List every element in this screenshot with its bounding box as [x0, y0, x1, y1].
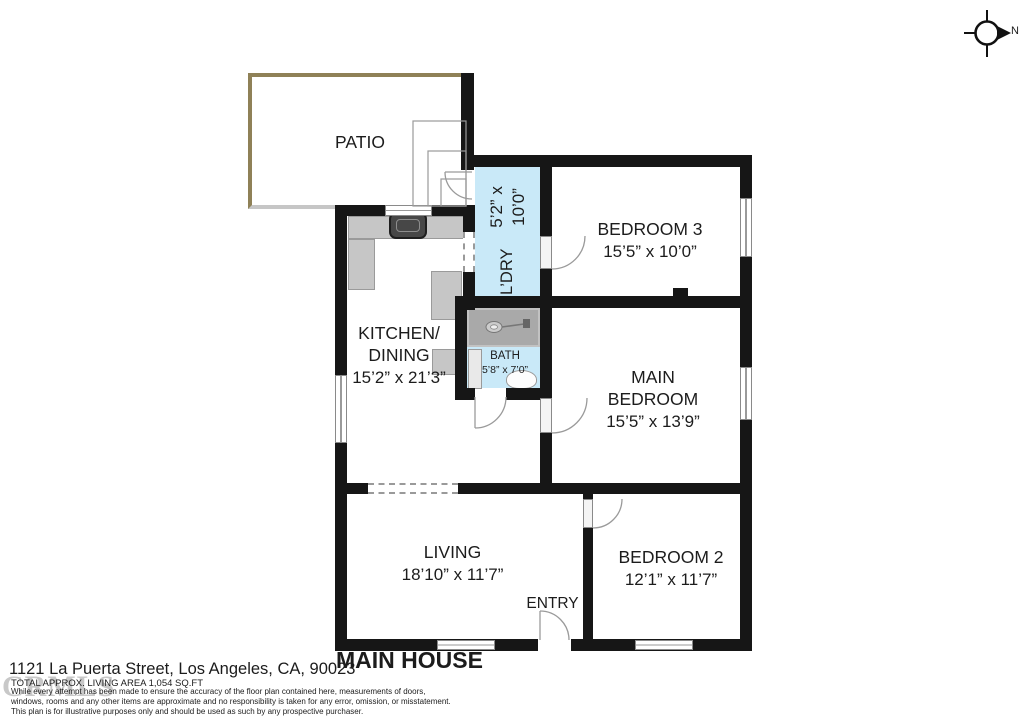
room-label-bedroom2: BEDROOM 2 12’1” x 11’7”	[571, 547, 771, 590]
compass-icon	[964, 10, 1011, 57]
floor-plan: N PATIO L’DRY 5’2” x 10’0” BEDROOM 3 15’…	[0, 0, 1024, 724]
wall	[673, 288, 688, 298]
dashed-opening	[463, 232, 475, 272]
kitchen-sink	[389, 212, 427, 239]
dashed-opening	[368, 483, 458, 494]
wall	[455, 296, 552, 308]
wall	[455, 388, 475, 400]
laundry-name: L’DRY	[497, 249, 518, 295]
wall	[540, 296, 752, 308]
door-frame	[583, 499, 593, 528]
room-label-main-bedroom: MAIN BEDROOM 15’5” x 13’9”	[553, 367, 753, 432]
room-label-bedroom3: BEDROOM 3 15’5” x 10’0”	[545, 219, 755, 262]
room-label-laundry: L’DRY 5’2” x 10’0”	[475, 170, 540, 295]
room-label-kitchen: KITCHEN/ DINING 15’2” x 21’3”	[333, 323, 465, 388]
window	[635, 640, 693, 650]
address: 1121 La Puerta Street, Los Angeles, CA, …	[9, 659, 409, 680]
shower	[467, 308, 540, 347]
room-label-entry: ENTRY	[510, 594, 595, 613]
disclaimer: While every attempt has been made to ens…	[11, 687, 491, 717]
wall	[461, 155, 752, 167]
room-label-bath: BATH 5’8” x 7’0”	[469, 349, 541, 378]
laundry-dims: 5’2” x 10’0”	[486, 170, 529, 244]
room-label-living: LIVING 18’10” x 11’7”	[340, 542, 565, 585]
wall	[540, 167, 552, 493]
room-label-patio: PATIO	[310, 132, 410, 154]
compass-north-label: N	[1011, 25, 1019, 39]
window	[385, 205, 432, 216]
kitchen-counter	[348, 239, 375, 290]
door-frame	[540, 398, 552, 433]
